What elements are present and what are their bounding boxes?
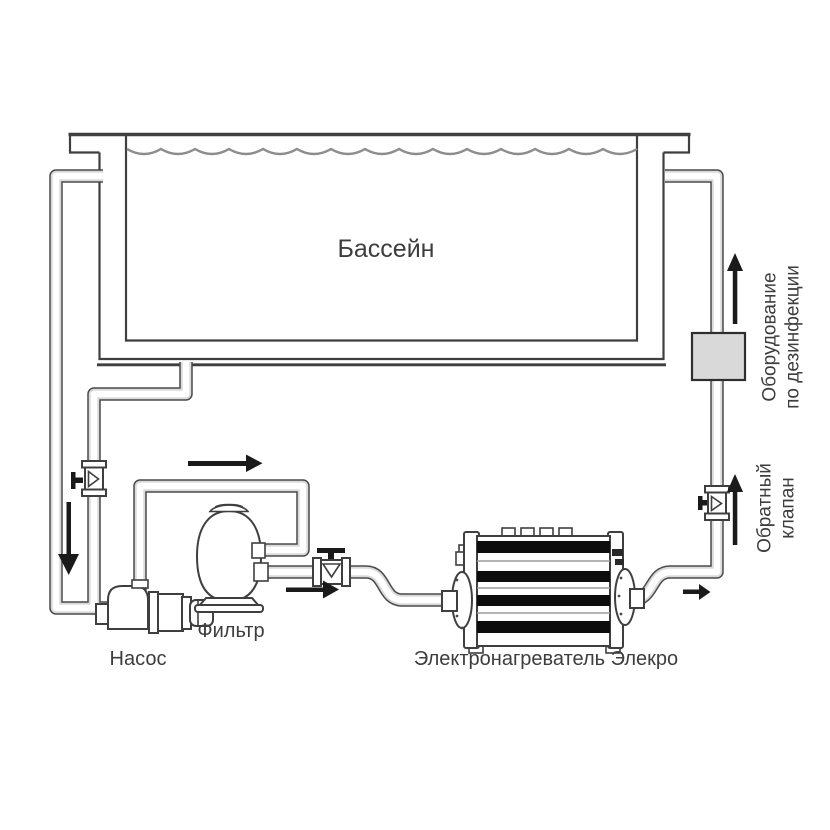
check-valve-label: Обратный клапан [754,451,800,566]
heater-band-4 [477,621,610,633]
disinfection-label: Оборудование по дезинфекции [759,250,805,425]
check-valve-handle-bar [698,496,703,510]
valve-drain-flange-bottom [82,490,106,497]
pipe-riser-outline [632,176,717,600]
valve-drain-handle-stem [75,478,83,484]
diagram-canvas [0,0,830,830]
pipe-riser-mid [632,176,717,600]
filter-outlet-coupler [254,563,268,581]
heater [442,528,644,653]
check-valve-label-line2: клапан [777,451,800,566]
arrow-right-heater-out [683,584,711,600]
heater-label: Электронагреватель Элекро [396,648,696,671]
pump-motor [157,594,183,631]
heater-terminal-1 [612,549,623,556]
valve-drain [71,461,106,496]
pump-volute [108,586,148,629]
pump-label: Насос [88,648,188,671]
arrow-right-arch [188,455,263,473]
heater-inlet-stub [442,591,457,611]
pump-outlet-flange [132,580,148,588]
heater-outlet-stub [630,589,644,608]
pipe-riser-inner [632,176,717,600]
pipe-filter-to-heater-mid [256,572,452,600]
heater-band-1 [477,541,610,553]
filter-label: Фильтр [181,620,281,643]
valve-filter-flange-right [342,558,350,586]
heater-terminal-2 [615,559,624,565]
heater-band-3 [477,595,610,606]
arrow-up-riser [727,253,743,324]
valve-filter-outlet [313,548,350,586]
arrow-up-check-valve [727,474,743,545]
check-valve-flange-top [705,486,729,493]
check-valve [698,486,729,520]
pool-heating-scheme: Бассейн Насос Фильтр Электронагреватель … [0,0,830,830]
check-valve-flange-bottom [705,514,729,521]
heater-band-2 [477,571,610,582]
valve-drain-flange-top [82,461,106,468]
disinfection-equipment-box [692,333,745,380]
pool-label: Бассейн [286,235,486,264]
disinfection-label-line1: Оборудование [759,250,782,425]
disinfection-label-line2: по дезинфекции [782,250,805,425]
valve-filter-flange-left [313,558,321,586]
filter [195,504,268,612]
filter-base-plate [195,605,263,612]
valve-drain-handle-bar [71,472,76,489]
flow-arrows [58,253,743,600]
check-valve-label-line1: Обратный [754,451,777,566]
water-line [127,149,637,154]
pump-flange-ring [149,592,158,633]
filter-inlet-coupler [252,543,265,558]
